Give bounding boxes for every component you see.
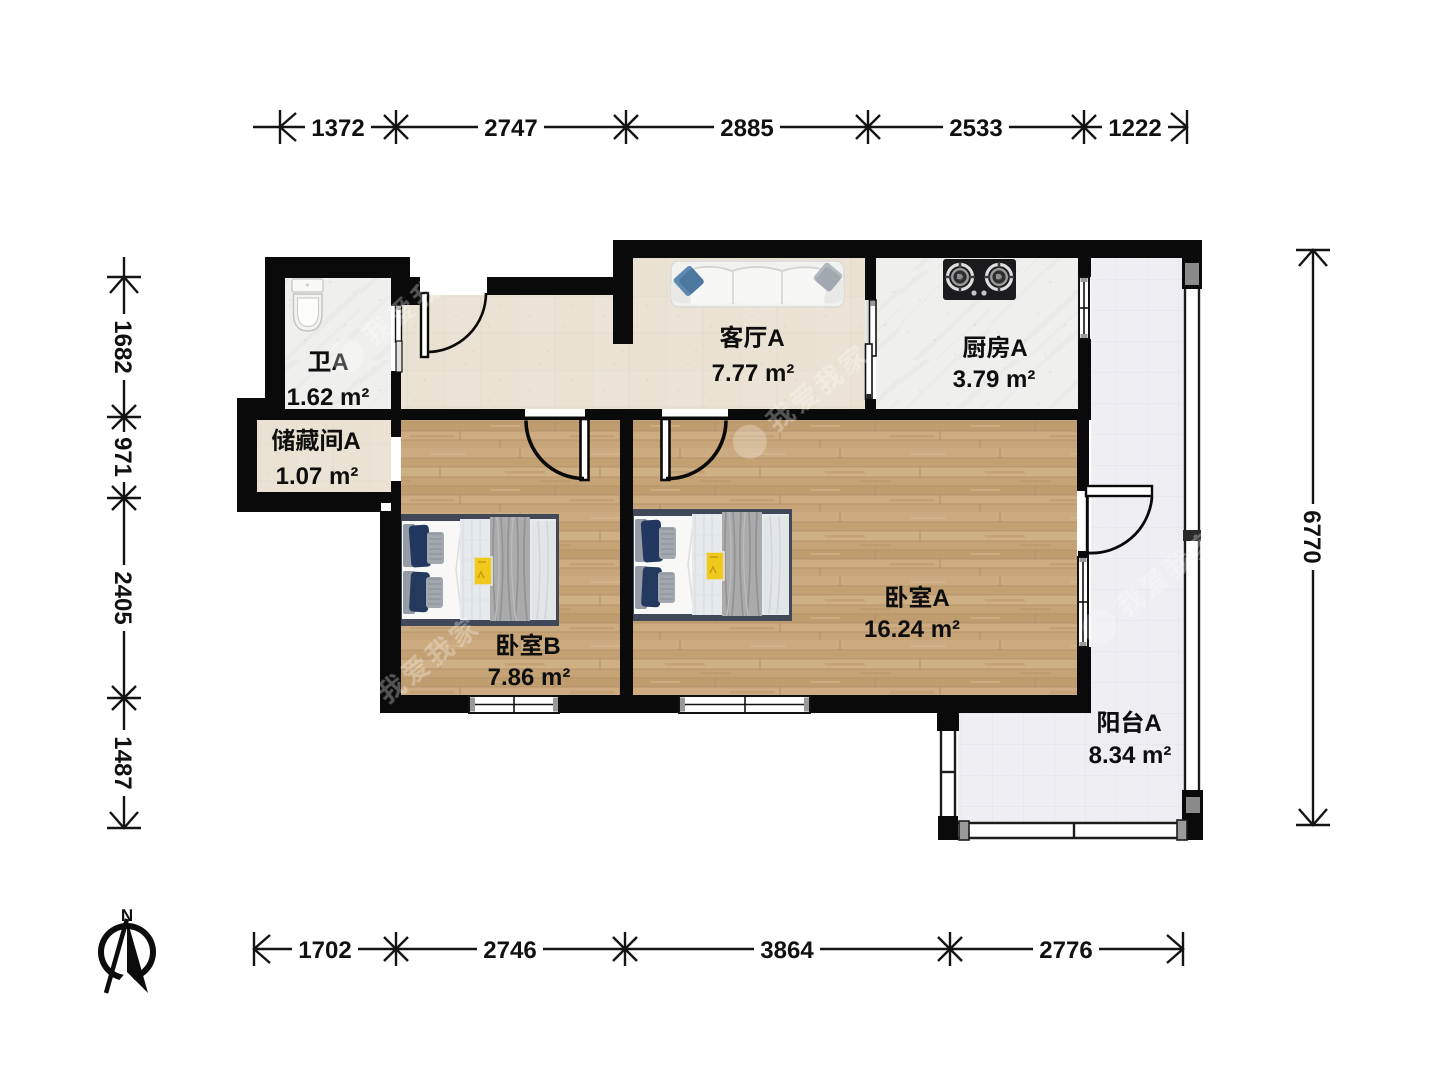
svg-text:A: A (1010, 335, 1027, 362)
svg-text:2405: 2405 (109, 571, 136, 624)
svg-text:971: 971 (109, 437, 136, 477)
svg-text:3.79 m²: 3.79 m² (953, 366, 1036, 393)
svg-text:A: A (343, 428, 360, 455)
svg-text:B: B (543, 633, 560, 660)
svg-text:6770: 6770 (1298, 510, 1325, 563)
svg-text:2533: 2533 (949, 115, 1002, 142)
svg-text:1702: 1702 (298, 937, 351, 964)
svg-text:1.07 m²: 1.07 m² (276, 463, 359, 490)
svg-text:1372: 1372 (311, 115, 364, 142)
svg-text:1682: 1682 (109, 320, 136, 373)
svg-text:1487: 1487 (109, 736, 136, 789)
svg-text:7.77 m²: 7.77 m² (712, 360, 795, 387)
svg-text:A: A (767, 325, 784, 352)
svg-text:2885: 2885 (720, 115, 773, 142)
svg-text:1.62 m²: 1.62 m² (287, 384, 370, 411)
svg-text:2746: 2746 (483, 937, 536, 964)
svg-text:8.34 m²: 8.34 m² (1089, 742, 1172, 769)
svg-text:3864: 3864 (760, 937, 814, 964)
svg-text:2776: 2776 (1039, 937, 1092, 964)
svg-text:7.86 m²: 7.86 m² (488, 664, 571, 691)
svg-text:16.24 m²: 16.24 m² (864, 616, 960, 643)
svg-text:A: A (1144, 710, 1161, 737)
svg-text:2747: 2747 (484, 115, 537, 142)
svg-text:A: A (932, 585, 949, 612)
svg-text:1222: 1222 (1108, 115, 1161, 142)
